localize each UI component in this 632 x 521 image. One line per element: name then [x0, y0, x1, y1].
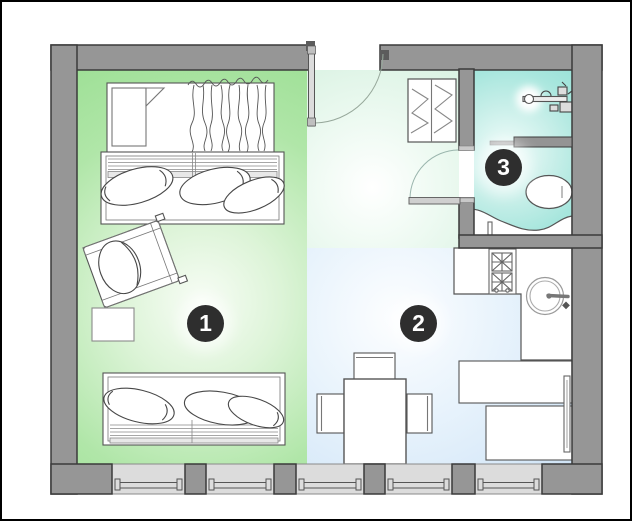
wall-left [51, 45, 77, 494]
plan-drawing [2, 2, 632, 521]
dining-set-icon [317, 353, 432, 464]
wall-pillar [364, 464, 385, 494]
dining-table-icon [344, 379, 406, 464]
wall-bathroom-bottom [459, 235, 602, 248]
room-1-badge: 1 [187, 305, 224, 342]
desk-icon [459, 361, 572, 460]
wall-top-right [380, 45, 602, 70]
sofa-bed-top-icon [97, 77, 289, 224]
stove-icon [489, 249, 516, 294]
armchair-icon [81, 213, 187, 310]
wall-corner-bottom-right [542, 464, 602, 494]
bathroom-door-icon [409, 150, 460, 204]
window-band [77, 464, 572, 494]
wall-pillar [452, 464, 475, 494]
entry-door-icon [308, 46, 384, 126]
door-jamb [380, 50, 389, 60]
wall-top-left [51, 45, 312, 70]
toilet-icon [526, 176, 572, 209]
door-jamb [459, 198, 474, 203]
floor-plan-canvas: 1 2 3 [0, 0, 632, 521]
wall-corner-bottom-left [51, 464, 112, 494]
room-2-badge: 2 [400, 305, 437, 342]
wall-partition [514, 137, 572, 147]
door-jamb [459, 146, 474, 151]
wall-bathroom-upper [459, 69, 474, 150]
wall-right [572, 45, 602, 494]
wall-bathroom-lower [459, 198, 474, 238]
shower-icon [516, 82, 572, 112]
wardrobe-icon [408, 79, 456, 142]
room-3-badge: 3 [485, 149, 522, 186]
side-table-icon [92, 308, 134, 341]
sofa-bottom-icon [100, 373, 287, 445]
furniture-layer [81, 77, 572, 464]
wall-pillar [274, 464, 296, 494]
kitchen-counter-icon [454, 248, 572, 360]
wall-pillar [185, 464, 206, 494]
bathtub-icon [460, 209, 572, 236]
